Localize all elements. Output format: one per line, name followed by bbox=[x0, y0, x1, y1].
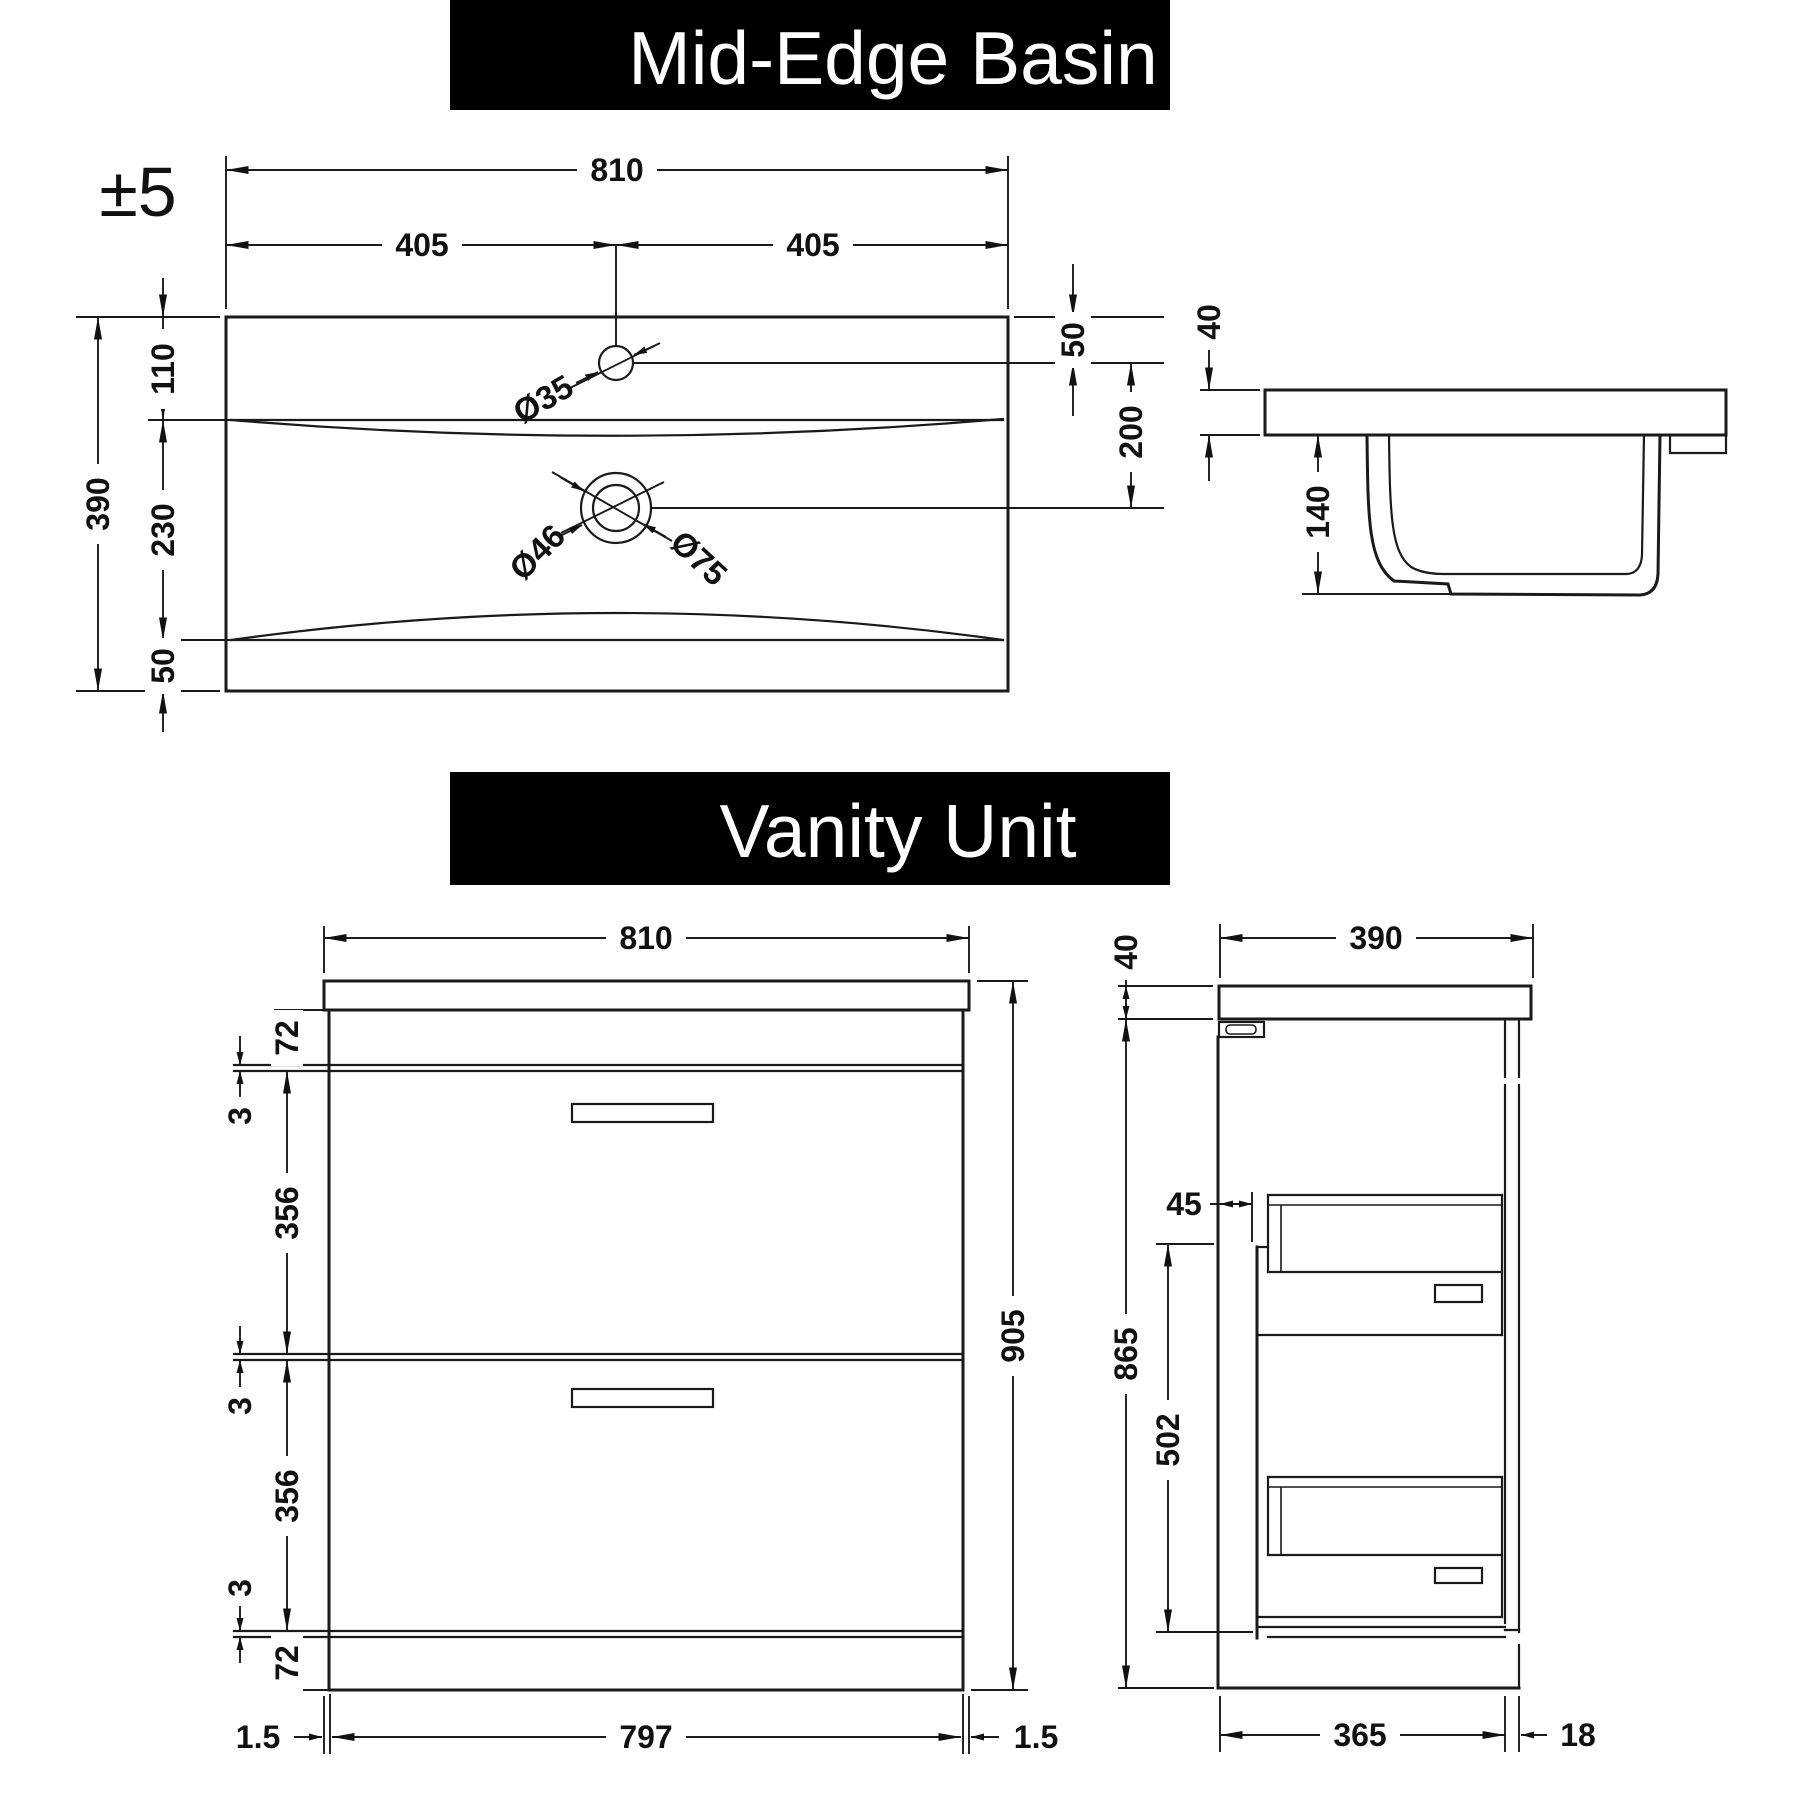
dim-basin-depth-mid: 230 bbox=[145, 490, 181, 570]
vanity-banner: Vanity Unit bbox=[450, 772, 1170, 885]
drawer-handle-upper bbox=[572, 1104, 713, 1122]
drawing-canvas: Mid-Edge Basin ±5 Ø35 bbox=[0, 0, 1800, 1800]
svg-text:405: 405 bbox=[395, 227, 448, 263]
svg-text:200: 200 bbox=[1113, 405, 1149, 458]
svg-text:110: 110 bbox=[145, 343, 181, 395]
upper-runner-handle bbox=[1435, 1285, 1482, 1302]
dim-carcass-height: 865 bbox=[1108, 1314, 1144, 1394]
cabinet-front bbox=[329, 1010, 963, 1690]
svg-text:905: 905 bbox=[995, 1309, 1031, 1362]
dim-top-rail: 72 bbox=[269, 1010, 305, 1066]
svg-text:502: 502 bbox=[1150, 1413, 1186, 1466]
svg-text:1.5: 1.5 bbox=[236, 1719, 280, 1755]
basin-side-view: 40 140 bbox=[1191, 294, 1726, 595]
dim-basin-half-right: 405 bbox=[773, 227, 853, 263]
dim-waste-inner-dia: Ø46 bbox=[502, 517, 572, 587]
dim-waste-outer-dia: Ø75 bbox=[664, 523, 735, 593]
svg-text:18: 18 bbox=[1560, 1717, 1596, 1753]
dim-edge-left: 1.5 bbox=[226, 1719, 290, 1755]
basin-plan-view: Ø35 Ø46 Ø75 810 bbox=[76, 152, 1164, 732]
bowl-back-curve bbox=[231, 419, 1003, 436]
dim-rim-thickness: 40 bbox=[1191, 294, 1227, 350]
fixing-clip-slot bbox=[1226, 1025, 1256, 1034]
dim-gap-bottom: 3 bbox=[222, 1573, 258, 1603]
svg-text:3: 3 bbox=[222, 1397, 258, 1415]
dim-carcass-width: 797 bbox=[606, 1719, 686, 1755]
svg-text:Ø75: Ø75 bbox=[664, 523, 735, 593]
basin-banner: Mid-Edge Basin bbox=[450, 0, 1170, 110]
dim-basin-half-left: 405 bbox=[382, 227, 462, 263]
svg-text:3: 3 bbox=[222, 1107, 258, 1125]
dim-upper-drawer: 356 bbox=[269, 1173, 305, 1253]
tap-hole bbox=[599, 346, 633, 380]
vanity-title: Vanity Unit bbox=[719, 789, 1076, 873]
svg-text:50: 50 bbox=[1055, 322, 1091, 358]
svg-text:Ø35: Ø35 bbox=[507, 367, 580, 430]
svg-text:390: 390 bbox=[1349, 920, 1402, 956]
svg-text:Ø46: Ø46 bbox=[502, 517, 572, 587]
worktop-side bbox=[1219, 986, 1531, 1019]
dim-vanity-height: 905 bbox=[995, 1296, 1031, 1376]
dim-tap-to-waste: 200 bbox=[1113, 392, 1149, 472]
waste-arrow-se bbox=[643, 524, 666, 537]
svg-text:810: 810 bbox=[619, 920, 672, 956]
tap-leader-arrow-left bbox=[576, 372, 598, 383]
svg-text:390: 390 bbox=[80, 477, 116, 530]
dim-edge-right: 1.5 bbox=[1004, 1719, 1068, 1755]
svg-text:230: 230 bbox=[145, 503, 181, 556]
dim-bottom-rail: 72 bbox=[269, 1635, 305, 1691]
technical-drawing-page: Mid-Edge Basin ±5 Ø35 bbox=[0, 0, 1800, 1800]
dim-basin-depth-bottom: 50 bbox=[145, 638, 181, 694]
svg-text:797: 797 bbox=[619, 1719, 672, 1755]
dim-drawer-zone: 502 bbox=[1150, 1400, 1186, 1480]
dim-basin-depth-top: 110 bbox=[145, 329, 181, 409]
dim-carcass-depth: 365 bbox=[1320, 1717, 1400, 1753]
worktop-front bbox=[324, 981, 969, 1010]
tap-leader-arrow-right bbox=[634, 346, 654, 355]
svg-text:1.5: 1.5 bbox=[1014, 1719, 1058, 1755]
drawer-handle-lower bbox=[572, 1389, 713, 1407]
dim-lower-drawer: 356 bbox=[269, 1456, 305, 1536]
svg-text:72: 72 bbox=[269, 1020, 305, 1056]
dim-basin-width: 810 bbox=[577, 152, 657, 188]
svg-text:140: 140 bbox=[1300, 485, 1336, 538]
svg-text:3: 3 bbox=[222, 1579, 258, 1597]
dim-tap-offset: 50 bbox=[1055, 312, 1091, 368]
dim-vanity-width: 810 bbox=[606, 920, 686, 956]
vanity-side-view: 390 40 865 502 bbox=[1108, 920, 1604, 1753]
basin-back-ledge bbox=[1670, 435, 1726, 453]
basin-section: Mid-Edge Basin ±5 Ø35 bbox=[76, 0, 1726, 732]
lower-runner-handle bbox=[1435, 1568, 1482, 1583]
svg-text:40: 40 bbox=[1191, 304, 1227, 340]
dim-vanity-depth: 390 bbox=[1336, 920, 1416, 956]
dim-front-offset: 45 bbox=[1158, 1186, 1210, 1222]
dim-gap-middle: 3 bbox=[222, 1391, 258, 1421]
svg-text:810: 810 bbox=[590, 152, 643, 188]
svg-text:356: 356 bbox=[269, 1186, 305, 1239]
basin-rim-section bbox=[1265, 390, 1726, 435]
dim-gap-top: 3 bbox=[222, 1101, 258, 1131]
dim-worktop-thickness: 40 bbox=[1108, 924, 1144, 980]
waste-arrow-nw bbox=[560, 477, 584, 491]
svg-text:40: 40 bbox=[1108, 934, 1144, 970]
svg-text:365: 365 bbox=[1333, 1717, 1386, 1753]
dim-bowl-depth: 140 bbox=[1300, 472, 1336, 552]
svg-text:72: 72 bbox=[269, 1645, 305, 1681]
tolerance-note: ±5 bbox=[99, 153, 176, 231]
svg-text:50: 50 bbox=[145, 648, 181, 684]
vanity-front-view: 810 905 72 3 bbox=[222, 920, 1068, 1755]
bowl-inner-profile bbox=[1389, 435, 1644, 574]
basin-title: Mid-Edge Basin bbox=[628, 16, 1157, 100]
bowl-front-curve bbox=[231, 613, 1003, 640]
svg-text:356: 356 bbox=[269, 1469, 305, 1522]
vanity-section: Vanity Unit 810 bbox=[222, 772, 1604, 1755]
dim-basin-depth: 390 bbox=[80, 464, 116, 544]
svg-text:865: 865 bbox=[1108, 1327, 1144, 1380]
svg-text:45: 45 bbox=[1166, 1186, 1202, 1222]
bowl-outer-profile bbox=[1367, 435, 1660, 595]
svg-text:405: 405 bbox=[786, 227, 839, 263]
basin-outline bbox=[226, 317, 1008, 691]
waste-cross-2 bbox=[561, 482, 664, 533]
dim-tap-dia: Ø35 bbox=[507, 367, 580, 430]
dim-back-panel: 18 bbox=[1552, 1717, 1604, 1753]
